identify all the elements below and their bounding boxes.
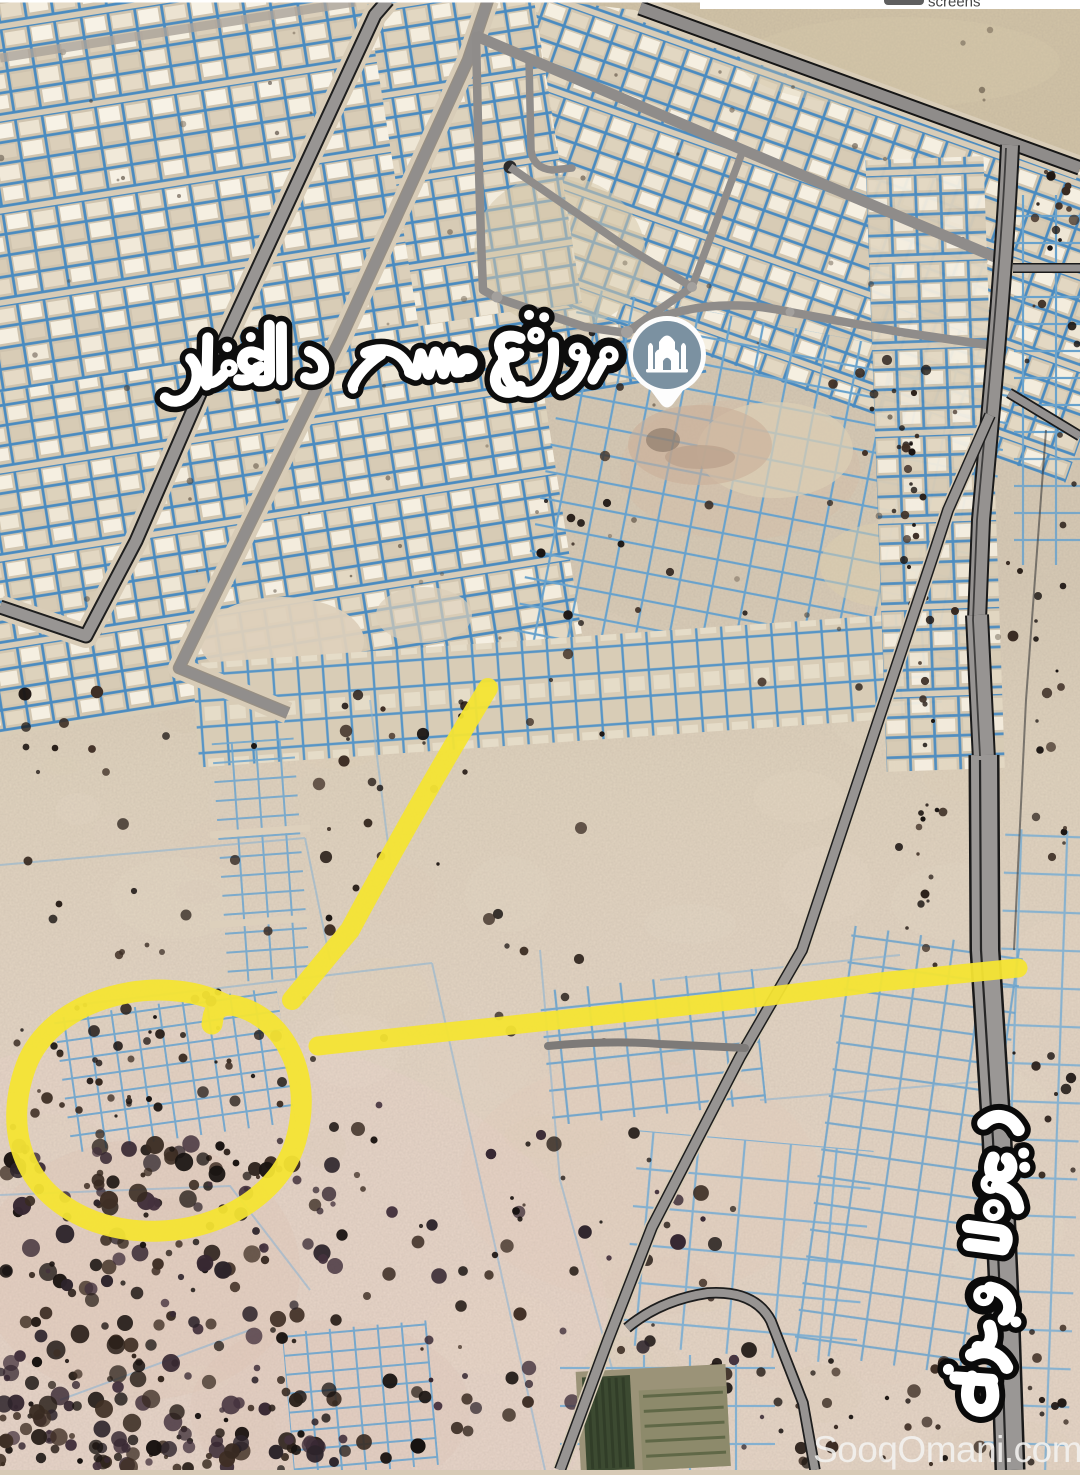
svg-text:SooqOmani.com: SooqOmani.com bbox=[813, 1429, 1080, 1470]
svg-text:screens: screens bbox=[928, 0, 981, 11]
